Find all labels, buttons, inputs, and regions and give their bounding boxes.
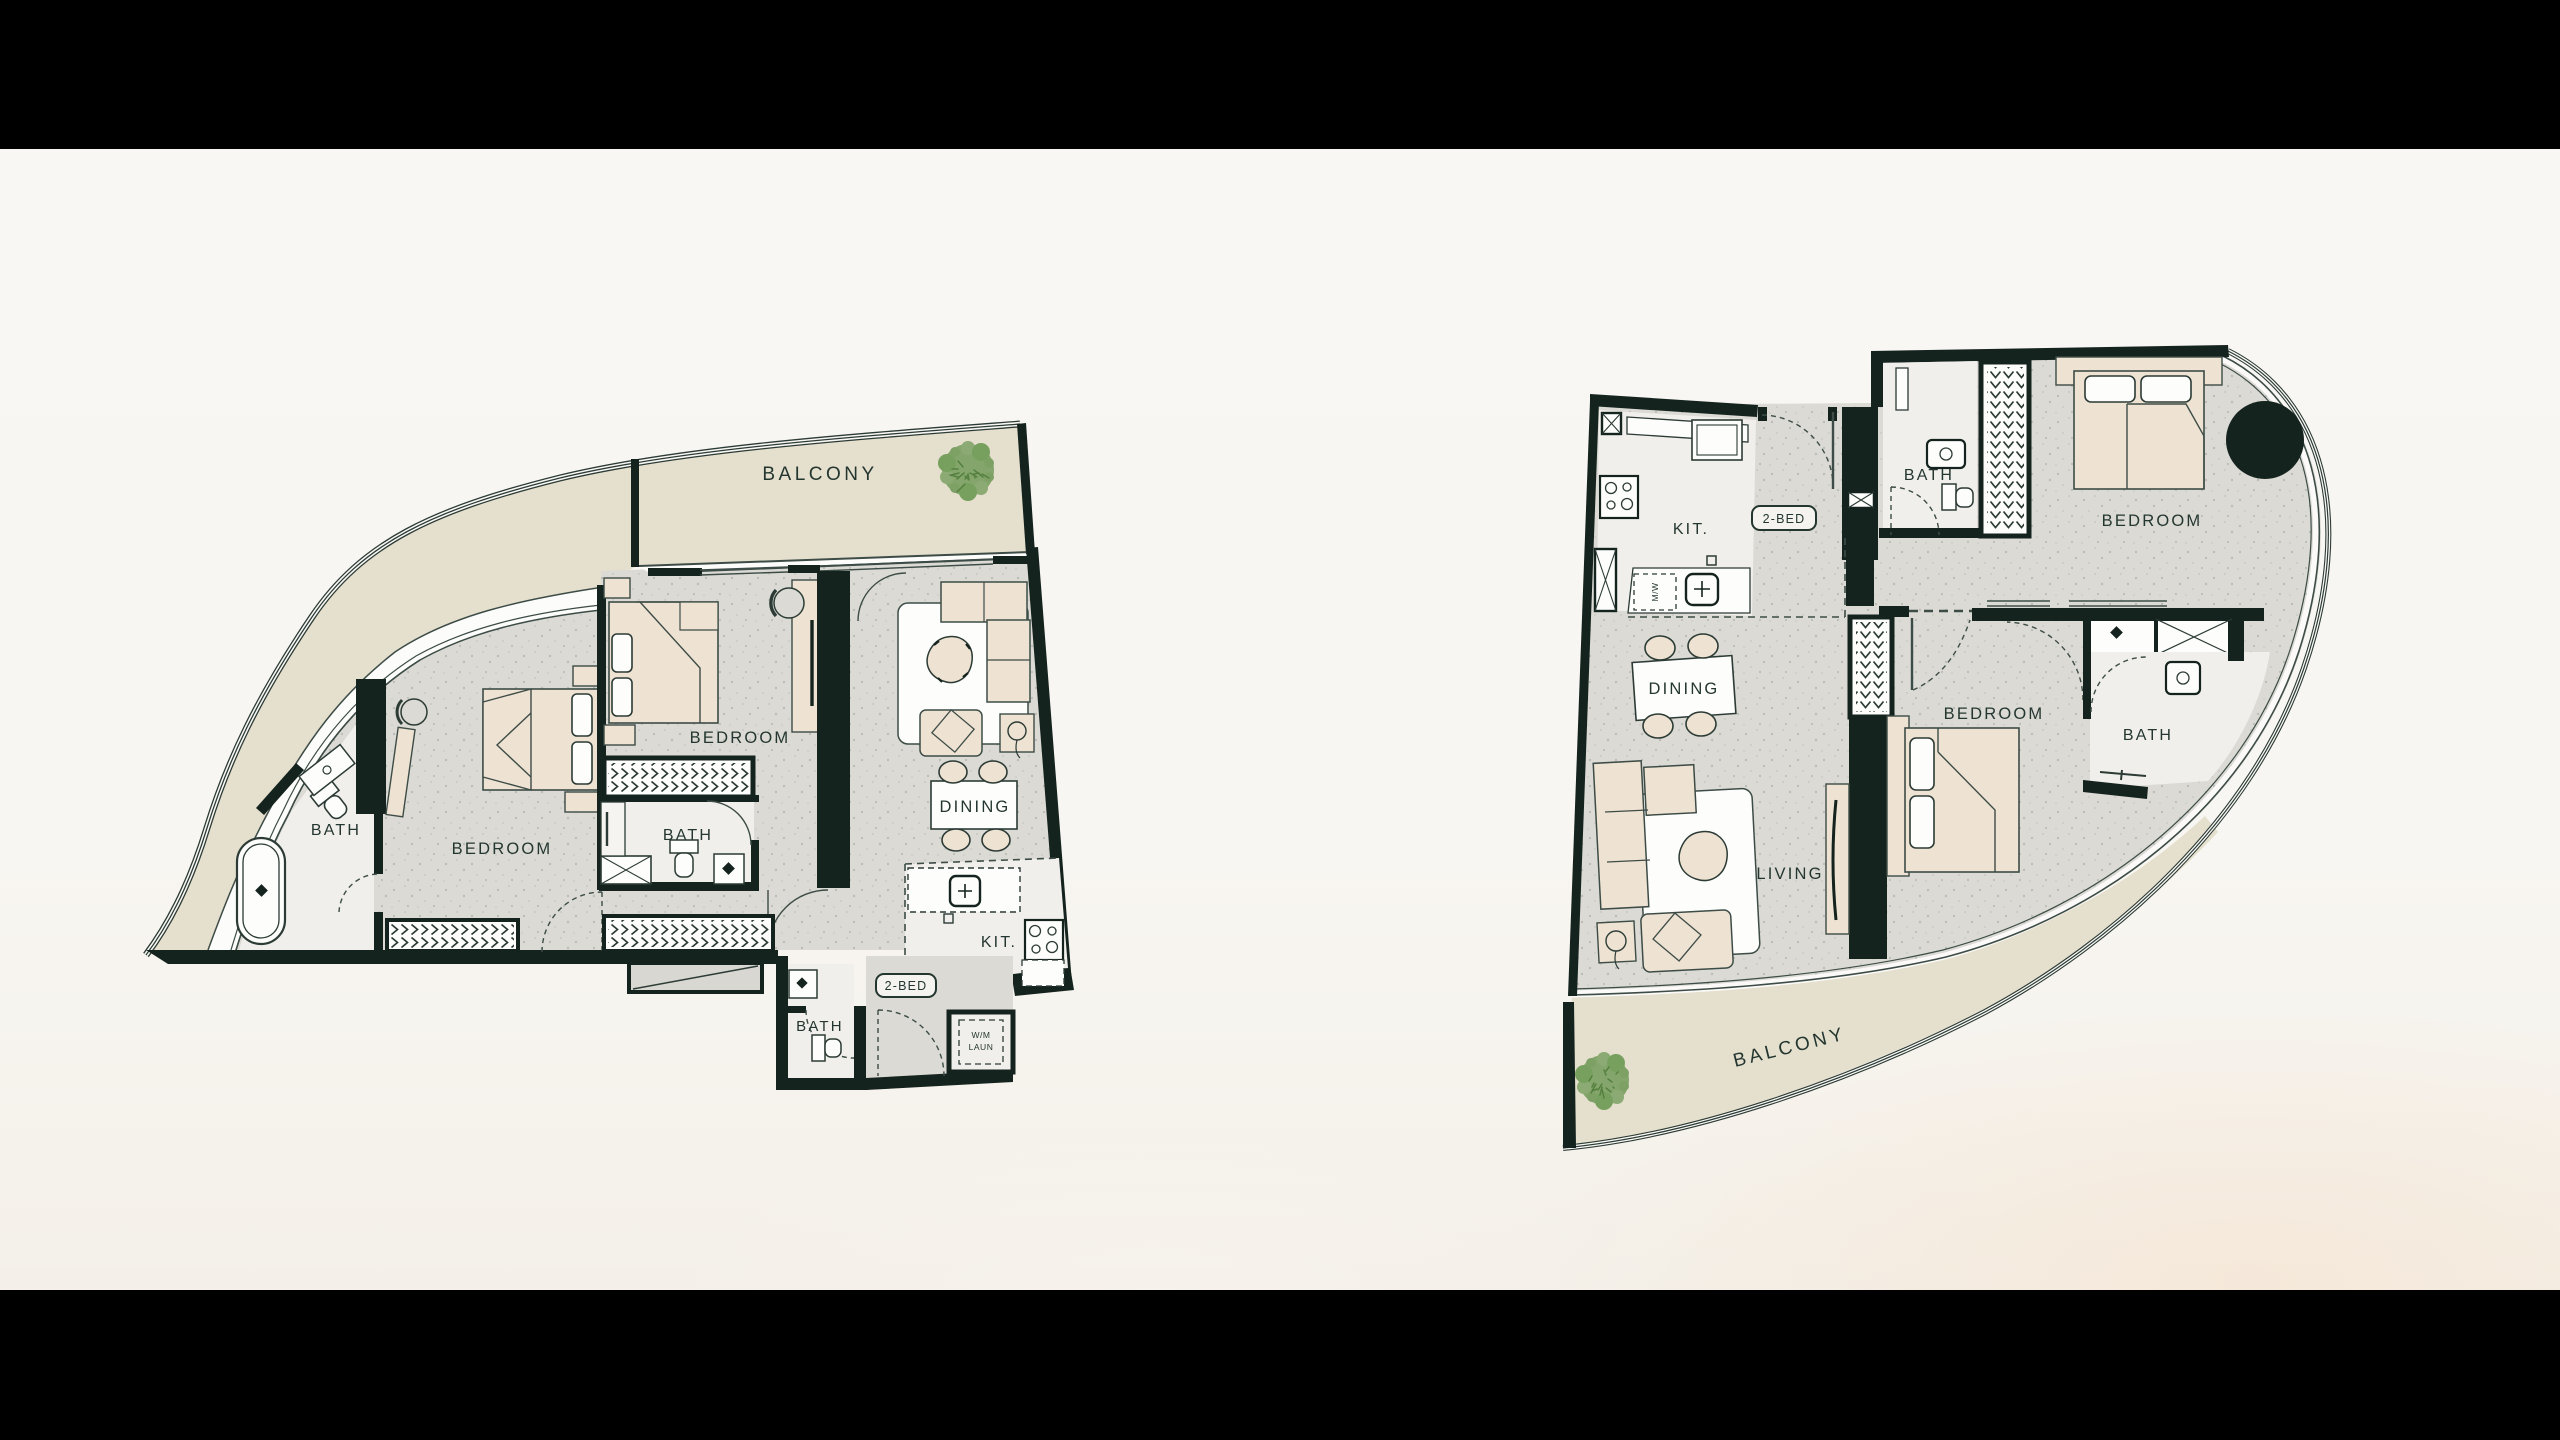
svg-text:BEDROOM: BEDROOM — [2102, 512, 2203, 530]
svg-text:LIVING: LIVING — [1756, 865, 1823, 883]
svg-text:KIT.: KIT. — [981, 934, 1017, 951]
svg-text:DINING: DINING — [940, 798, 1011, 816]
svg-text:BALCONY: BALCONY — [762, 464, 877, 485]
svg-text:BEDROOM: BEDROOM — [452, 840, 553, 858]
svg-text:BATH: BATH — [311, 822, 361, 839]
svg-text:2-BED: 2-BED — [1763, 512, 1806, 526]
svg-text:DINING: DINING — [1649, 680, 1720, 698]
svg-text:LAUN: LAUN — [969, 1042, 994, 1052]
svg-text:BEDROOM: BEDROOM — [690, 729, 791, 747]
svg-text:BATH: BATH — [2123, 727, 2173, 744]
svg-text:M/W: M/W — [1650, 583, 1660, 602]
svg-text:BATH: BATH — [1904, 467, 1954, 484]
svg-text:W/M: W/M — [972, 1030, 991, 1040]
svg-text:BEDROOM: BEDROOM — [1944, 705, 2045, 723]
svg-text:2-BED: 2-BED — [885, 979, 928, 993]
svg-text:BATH: BATH — [796, 1018, 844, 1035]
svg-text:KIT.: KIT. — [1673, 521, 1709, 538]
